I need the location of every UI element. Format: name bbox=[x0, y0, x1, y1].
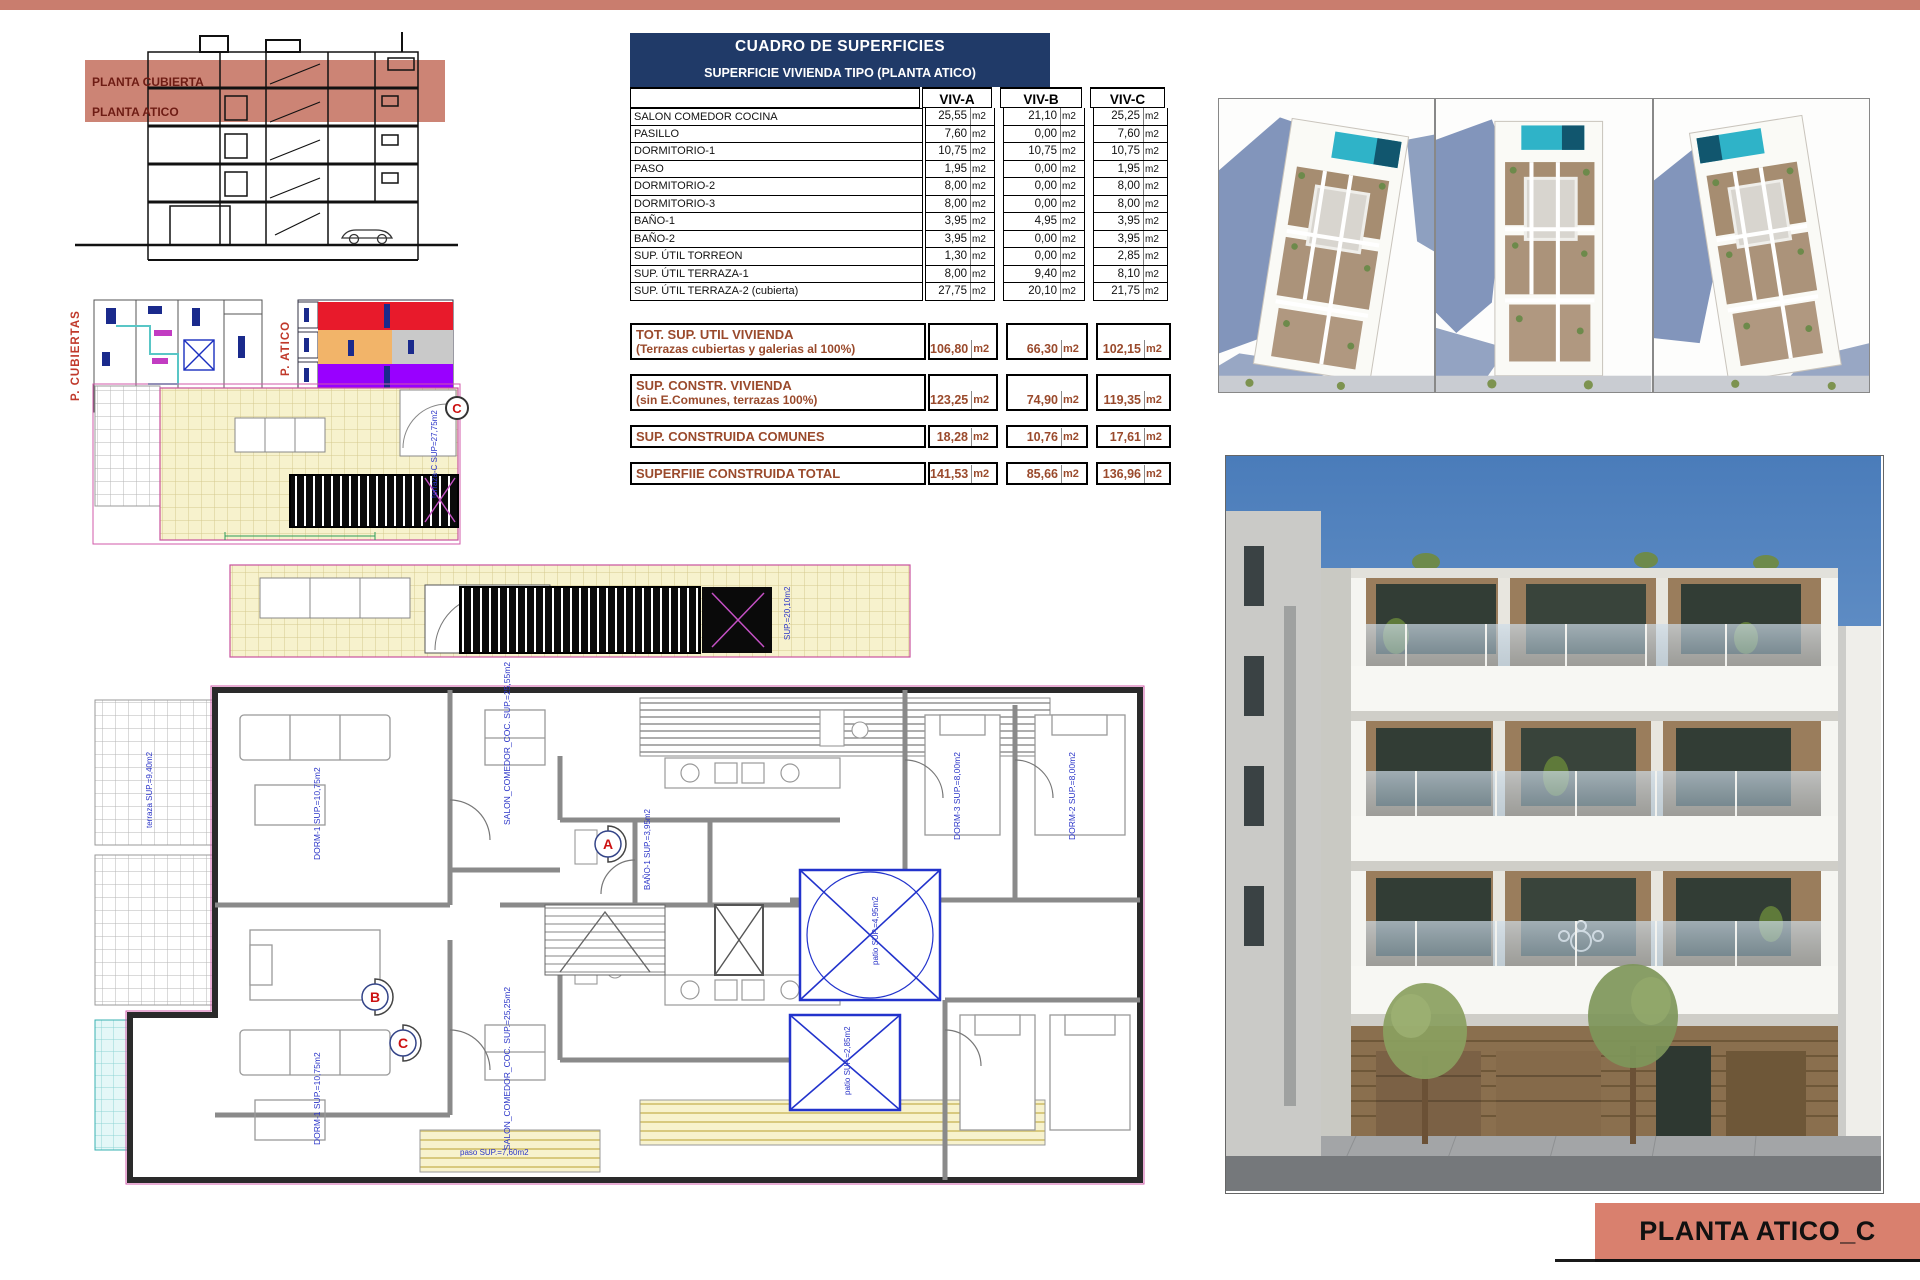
table-subtitle: SUPERFICIE VIVIENDA TIPO (PLANTA ATICO) bbox=[630, 61, 1050, 87]
top-accent-strip bbox=[0, 0, 1920, 10]
table-body: SALON COMEDOR COCINA25,55m221,10m225,25m… bbox=[630, 108, 1186, 301]
table-row: SALON COMEDOR COCINA25,55m221,10m225,25m… bbox=[630, 108, 1186, 126]
svg-text:A: A bbox=[603, 836, 613, 852]
svg-text:C: C bbox=[452, 401, 462, 416]
patio-1: patio SUP.=4,95m2 bbox=[800, 870, 940, 1000]
table-row: SUP. ÚTIL TERRAZA-2 (cubierta)27,75m220,… bbox=[630, 283, 1186, 301]
facade-render bbox=[1225, 455, 1884, 1194]
salon-a-annotation: SALON_COMEDOR_COC. SUP.=25,55m2 bbox=[502, 662, 512, 825]
dorm1-a-annotation: DORM-1 SUP.=10,75m2 bbox=[312, 767, 322, 860]
dorm2-annotation: DORM-2 SUP.=8,00m2 bbox=[1067, 752, 1077, 840]
bano1-annotation: BAÑO-1 SUP.=3,95m2 bbox=[643, 808, 652, 890]
col-header-viv-b: VIV-B bbox=[1000, 87, 1082, 108]
dorm3-annotation: DORM-3 SUP.=8,00m2 bbox=[952, 752, 962, 840]
car-glyph bbox=[342, 230, 392, 244]
section-label-cubierta: PLANTA CUBIERTA bbox=[92, 75, 204, 89]
svg-text:patio SUP.=4,95m2: patio SUP.=4,95m2 bbox=[871, 896, 880, 965]
table-row: DORMITORIO-38,00m20,00m28,00m2 bbox=[630, 196, 1186, 214]
dorm1-c-annotation: DORM-1 SUP.=10,75m2 bbox=[312, 1052, 322, 1145]
table-row: PASILLO7,60m20,00m27,60m2 bbox=[630, 126, 1186, 144]
table-summary-row: SUP. CONSTR. VIVIENDA(sin E.Comunes, ter… bbox=[630, 374, 1186, 411]
table-summary-row: SUPERFIIE CONSTRUIDA TOTAL141,53m285,66m… bbox=[630, 462, 1186, 485]
table-summary-row: SUP. CONSTRUIDA COMUNES18,28m210,76m217,… bbox=[630, 425, 1186, 448]
aerial-render-1 bbox=[1219, 99, 1436, 392]
table-summary: TOT. SUP. UTIL VIVIENDA(Terrazas cubiert… bbox=[630, 323, 1186, 485]
svg-text:C: C bbox=[398, 1035, 408, 1051]
patio-2: patio SUP.=2,85m2 bbox=[790, 1015, 900, 1110]
table-row: DORMITORIO-110,75m210,75m210,75m2 bbox=[630, 143, 1186, 161]
svg-text:patio SUP.=2,85m2: patio SUP.=2,85m2 bbox=[843, 1026, 852, 1095]
table-row: BAÑO-23,95m20,00m23,95m2 bbox=[630, 231, 1186, 249]
paso-annotation: paso SUP.=7,60m2 bbox=[460, 1148, 529, 1157]
table-row: DORMITORIO-28,00m20,00m28,00m2 bbox=[630, 178, 1186, 196]
col-header-viv-c: VIV-C bbox=[1090, 87, 1165, 108]
section-label-atico: PLANTA ATICO bbox=[92, 105, 179, 119]
roof-plan-annotation: terraza-C SUP=27,75m2 bbox=[430, 410, 439, 498]
aerial-render-3 bbox=[1654, 99, 1869, 392]
main-floor-plan: SUP.=20,10m2 terraza SUP.=9,40m2 terraza… bbox=[90, 560, 1170, 1192]
roof-terrace-plan: C terraza-C SUP=27,75m2 bbox=[85, 378, 520, 563]
roof-plan-marker-c: C bbox=[446, 397, 468, 419]
atico-zone-orange bbox=[318, 330, 392, 364]
mini-plan-atico-label: P. ATICO bbox=[280, 308, 292, 388]
svg-text:SUP.=20,10m2: SUP.=20,10m2 bbox=[783, 586, 792, 640]
aerial-renders-strip bbox=[1218, 98, 1870, 393]
atico-zone-gray bbox=[392, 330, 453, 364]
mini-plan-cubiertas-label: P. CUBIERTAS bbox=[70, 300, 82, 412]
table-row: SUP. ÚTIL TERRAZA-18,00m29,40m28,10m2 bbox=[630, 266, 1186, 284]
sheet-title-block: PLANTA ATICO_C bbox=[1595, 1203, 1920, 1262]
table-row: BAÑO-13,95m24,95m23,95m2 bbox=[630, 213, 1186, 231]
drawing-sheet: PLANTA CUBIERTA PLANTA ATICO P. CUBIERTA… bbox=[0, 0, 1920, 1280]
surface-table: CUADRO DE SUPERFICIES SUPERFICIE VIVIEND… bbox=[630, 33, 1186, 485]
sheet-title: PLANTA ATICO_C bbox=[1639, 1216, 1876, 1247]
salon-c-annotation: SALON_COMEDOR_COC. SUP.=25,25m2 bbox=[502, 987, 512, 1150]
col-header-viv-a: VIV-A bbox=[922, 87, 992, 108]
terraza-b-annotation: terraza SUP.=9,40m2 bbox=[145, 751, 154, 828]
table-summary-row: TOT. SUP. UTIL VIVIENDA(Terrazas cubiert… bbox=[630, 323, 1186, 360]
aerial-render-2 bbox=[1436, 99, 1653, 392]
table-title: CUADRO DE SUPERFICIES bbox=[630, 33, 1050, 61]
building-section-drawing: PLANTA CUBIERTA PLANTA ATICO bbox=[70, 30, 465, 288]
table-corner-cell bbox=[630, 87, 920, 108]
svg-text:B: B bbox=[370, 989, 380, 1005]
table-column-headers: VIV-A VIV-B VIV-C bbox=[630, 87, 1186, 108]
table-row: SUP. ÚTIL TORREON1,30m20,00m22,85m2 bbox=[630, 248, 1186, 266]
table-row: PASO1,95m20,00m21,95m2 bbox=[630, 161, 1186, 179]
